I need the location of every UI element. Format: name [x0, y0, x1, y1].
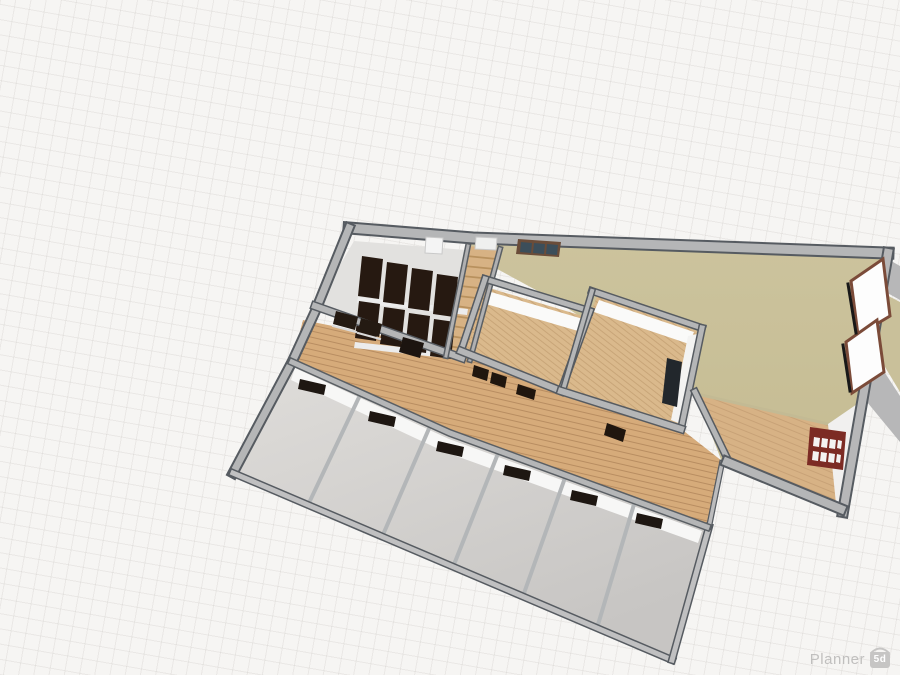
north-window-pane [520, 242, 532, 253]
red-window-pane [829, 439, 836, 449]
floorplan-3d-scene[interactable] [0, 0, 900, 675]
red-window-pane [812, 451, 819, 461]
logo-badge: 5d [870, 652, 890, 668]
logo-text: Planner [810, 651, 865, 668]
desk[interactable] [408, 268, 433, 311]
desk[interactable] [358, 256, 383, 299]
logo-roof-icon [870, 646, 890, 654]
red-window-pane [828, 453, 835, 463]
red-window-pane [821, 438, 828, 448]
planner5d-watermark: Planner 5d [810, 651, 890, 668]
north-window-pane [546, 244, 558, 255]
north-window-pane [533, 243, 545, 254]
logo-badge-text: 5d [874, 654, 887, 665]
red-window-pane [813, 437, 820, 447]
north-skylight[interactable] [425, 237, 443, 254]
planner5d-3d-viewport[interactable]: Planner 5d [0, 0, 900, 675]
red-window-pane [820, 452, 827, 462]
north-skylight[interactable] [475, 237, 497, 250]
desk[interactable] [383, 262, 408, 305]
